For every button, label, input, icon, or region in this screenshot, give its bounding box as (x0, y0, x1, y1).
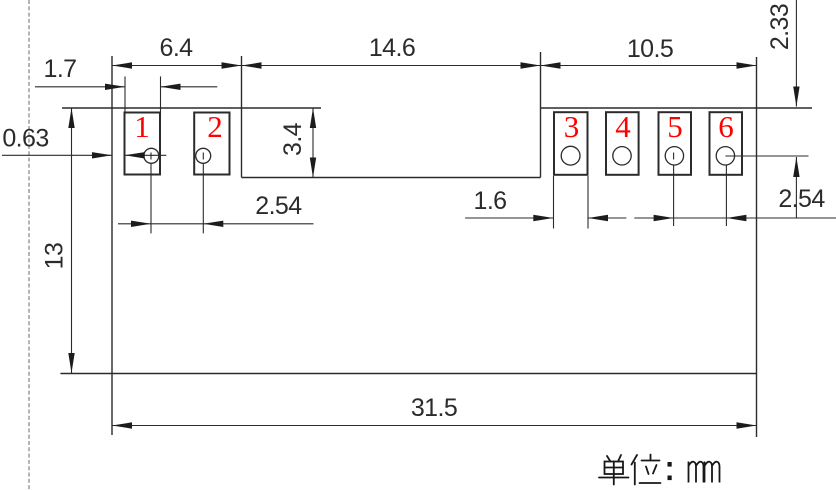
svg-text:10.5: 10.5 (627, 35, 673, 63)
svg-text:0.63: 0.63 (2, 125, 48, 153)
svg-text:6: 6 (718, 109, 734, 144)
svg-text:14.6: 14.6 (369, 34, 415, 62)
svg-text:3.4: 3.4 (279, 122, 307, 156)
svg-text:6.4: 6.4 (160, 34, 194, 62)
svg-text:4: 4 (615, 109, 631, 144)
svg-text:2.54: 2.54 (778, 185, 825, 213)
svg-text:2.54: 2.54 (255, 192, 302, 220)
svg-text:5: 5 (667, 109, 683, 144)
svg-text:1.7: 1.7 (44, 55, 77, 83)
svg-text:31.5: 31.5 (411, 394, 457, 422)
svg-text:2.33: 2.33 (766, 4, 794, 50)
svg-text:1: 1 (134, 109, 150, 144)
svg-text:13: 13 (41, 243, 69, 270)
svg-text:3: 3 (564, 109, 580, 144)
svg-text:1.6: 1.6 (474, 187, 507, 215)
svg-text:2: 2 (207, 109, 223, 144)
